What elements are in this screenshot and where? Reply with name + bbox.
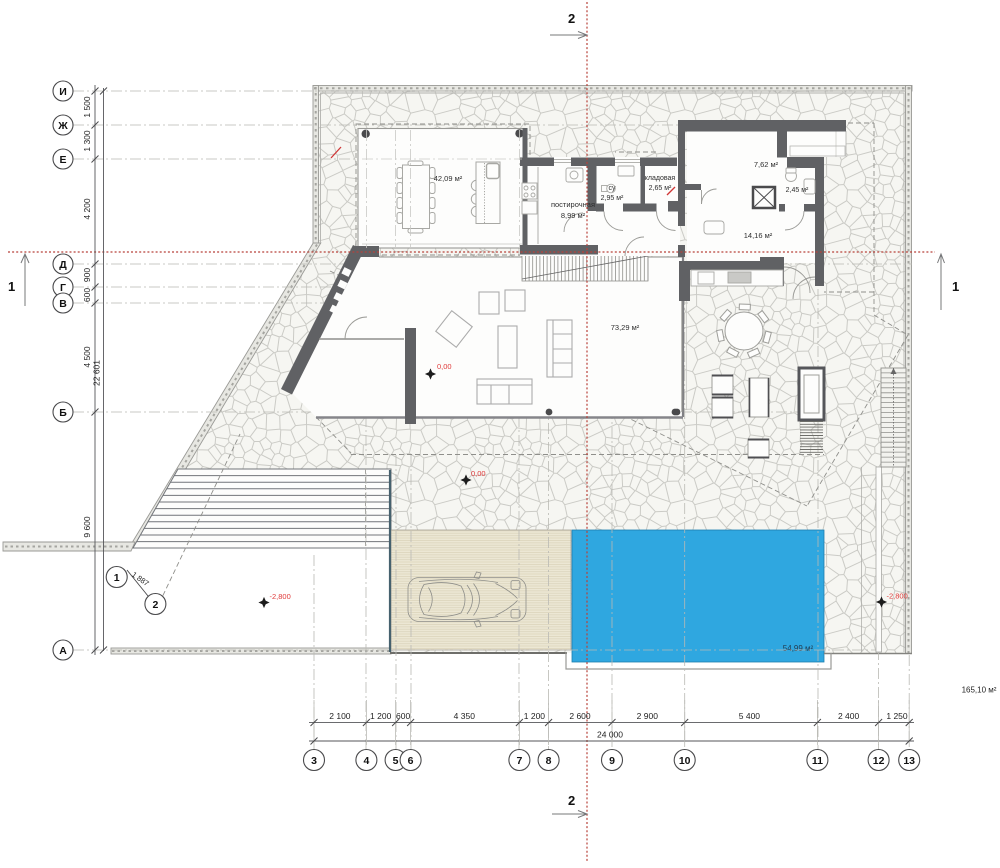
svg-text:Г: Г xyxy=(60,282,66,294)
svg-text:1: 1 xyxy=(8,279,15,294)
svg-text:2,45 м²: 2,45 м² xyxy=(786,187,809,194)
svg-text:5: 5 xyxy=(393,755,399,767)
svg-text:73,29 м²: 73,29 м² xyxy=(611,323,640,332)
svg-text:54,99 м²: 54,99 м² xyxy=(783,644,814,653)
svg-text:10: 10 xyxy=(679,755,691,767)
svg-text:8,99 м²: 8,99 м² xyxy=(561,211,586,220)
svg-text:8: 8 xyxy=(546,755,552,767)
svg-text:5 400: 5 400 xyxy=(739,711,761,721)
svg-text:1 200: 1 200 xyxy=(524,711,546,721)
svg-text:3: 3 xyxy=(311,755,317,767)
svg-text:600: 600 xyxy=(82,288,92,302)
svg-text:2 100: 2 100 xyxy=(329,711,351,721)
svg-text:В: В xyxy=(59,298,67,310)
svg-text:су: су xyxy=(609,185,617,192)
svg-text:2: 2 xyxy=(568,793,575,808)
svg-text:2: 2 xyxy=(568,11,575,26)
svg-text:-2,800: -2,800 xyxy=(270,592,291,601)
svg-text:Б: Б xyxy=(59,407,67,419)
svg-text:1 250: 1 250 xyxy=(886,711,908,721)
svg-text:Ж: Ж xyxy=(57,120,68,132)
svg-text:600: 600 xyxy=(396,711,410,721)
svg-text:0,00: 0,00 xyxy=(471,469,486,478)
svg-text:Е: Е xyxy=(59,154,66,166)
svg-text:-2,800: -2,800 xyxy=(887,592,908,601)
svg-text:9 600: 9 600 xyxy=(82,516,92,538)
svg-text:4 500: 4 500 xyxy=(82,346,92,368)
svg-text:0,00: 0,00 xyxy=(437,362,452,371)
svg-text:2: 2 xyxy=(152,599,158,611)
svg-text:11: 11 xyxy=(812,755,823,767)
svg-text:А: А xyxy=(59,645,67,657)
svg-text:2 400: 2 400 xyxy=(838,711,860,721)
svg-text:2,65 м²: 2,65 м² xyxy=(649,185,672,192)
svg-text:165,10 м²: 165,10 м² xyxy=(962,686,997,695)
svg-text:13: 13 xyxy=(903,755,915,767)
svg-text:постирочная: постирочная xyxy=(551,200,595,209)
svg-text:42,09 м²: 42,09 м² xyxy=(434,174,463,183)
svg-text:14,16 м²: 14,16 м² xyxy=(744,231,773,240)
svg-text:1 200: 1 200 xyxy=(370,711,392,721)
svg-text:12: 12 xyxy=(873,755,885,767)
svg-text:22 601: 22 601 xyxy=(92,360,102,386)
svg-text:24 000: 24 000 xyxy=(597,730,623,740)
svg-text:4 350: 4 350 xyxy=(454,711,476,721)
svg-text:Д: Д xyxy=(59,259,67,271)
svg-text:900: 900 xyxy=(82,268,92,282)
svg-text:7,62 м²: 7,62 м² xyxy=(754,160,779,169)
svg-text:4 200: 4 200 xyxy=(82,198,92,220)
svg-text:1 300: 1 300 xyxy=(82,130,92,152)
svg-text:9: 9 xyxy=(609,755,615,767)
svg-text:кладовая: кладовая xyxy=(645,175,676,182)
svg-text:2 600: 2 600 xyxy=(569,711,591,721)
svg-text:7: 7 xyxy=(516,755,522,767)
svg-text:И: И xyxy=(59,86,67,98)
svg-text:1: 1 xyxy=(114,572,120,584)
svg-text:4: 4 xyxy=(363,755,369,767)
svg-text:6: 6 xyxy=(408,755,414,767)
svg-text:2 900: 2 900 xyxy=(637,711,659,721)
svg-text:1 500: 1 500 xyxy=(82,96,92,118)
svg-text:1: 1 xyxy=(952,279,959,294)
svg-text:2,95 м²: 2,95 м² xyxy=(601,195,624,202)
